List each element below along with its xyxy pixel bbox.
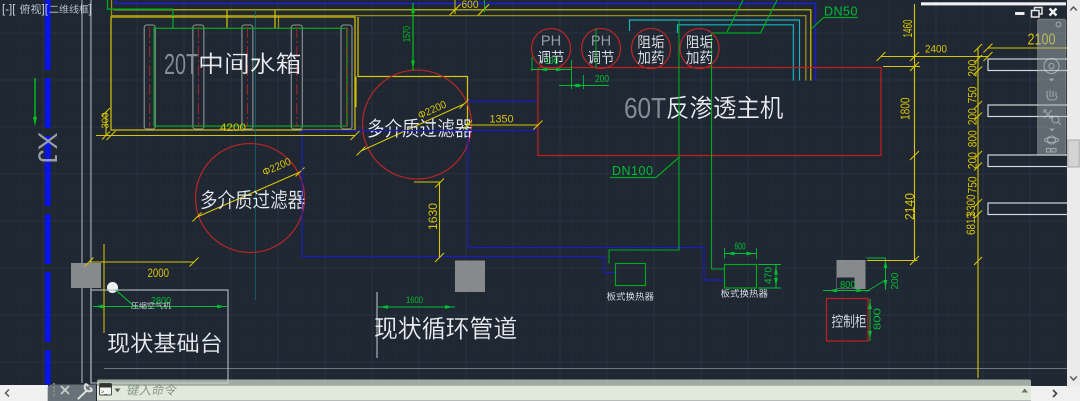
svg-text:200: 200	[966, 152, 980, 169]
svg-text:4200: 4200	[220, 122, 246, 134]
svg-text:750: 750	[966, 176, 980, 193]
svg-text:470: 470	[763, 267, 775, 284]
svg-text:PH: PH	[591, 34, 611, 50]
svg-text:1800: 1800	[899, 97, 913, 120]
svg-text:1350: 1350	[490, 114, 514, 126]
svg-text:2140: 2140	[903, 193, 917, 220]
svg-text:20T: 20T	[164, 49, 198, 81]
svg-text:>_: >_	[101, 390, 108, 396]
svg-text:800: 800	[872, 308, 884, 330]
svg-text:DN100: DN100	[612, 164, 653, 178]
svg-text:1600: 1600	[406, 295, 423, 306]
svg-text:60T: 60T	[624, 93, 666, 125]
svg-text:750: 750	[966, 86, 980, 103]
svg-text:DN50: DN50	[824, 5, 858, 19]
svg-text:800: 800	[840, 280, 856, 291]
svg-text:1630: 1630	[426, 203, 440, 230]
svg-text:1460: 1460	[901, 19, 915, 37]
svg-text:2400: 2400	[925, 44, 947, 56]
svg-text:600: 600	[462, 0, 479, 11]
svg-text:][: ][	[42, 4, 49, 16]
svg-text:300: 300	[101, 112, 112, 128]
svg-text:190: 190	[545, 56, 559, 67]
svg-text:XJ: XJ	[33, 132, 63, 164]
svg-text:800: 800	[966, 130, 980, 147]
svg-text:2000: 2000	[148, 266, 170, 280]
svg-text:600: 600	[735, 242, 746, 253]
svg-text:200: 200	[966, 108, 980, 125]
svg-text:6813: 6813	[964, 213, 978, 235]
svg-text:200: 200	[966, 59, 980, 76]
svg-text:PH: PH	[541, 34, 561, 50]
svg-text:[-][: [-][	[2, 4, 16, 16]
svg-text:1570: 1570	[402, 26, 413, 42]
svg-text:200: 200	[889, 272, 901, 289]
svg-text:]: ]	[89, 4, 92, 16]
svg-text:200: 200	[595, 74, 609, 85]
